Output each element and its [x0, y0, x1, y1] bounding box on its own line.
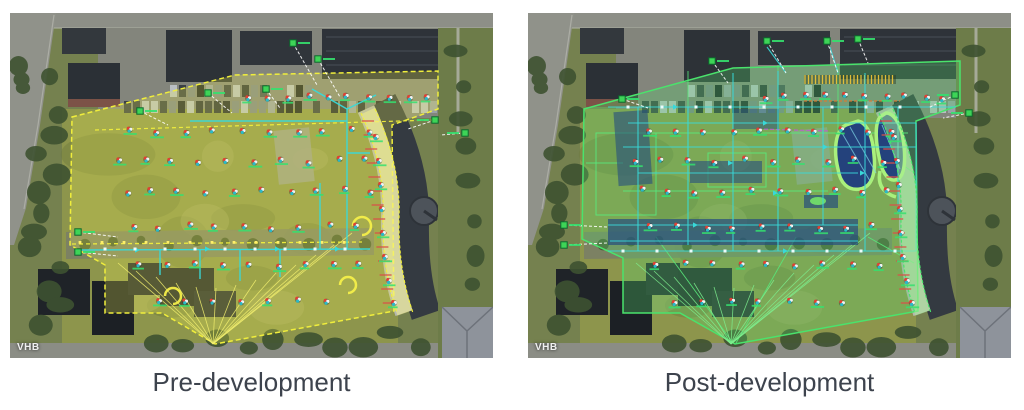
- panel-pre-development: VHB Pre-development: [10, 13, 493, 397]
- caption-post-development: Post-development: [528, 367, 1011, 397]
- vhb-watermark: VHB: [17, 342, 40, 353]
- pre-development-map-graphic: [10, 13, 493, 358]
- post-development-map-graphic: [528, 13, 1011, 358]
- caption-pre-development: Pre-development: [10, 367, 493, 397]
- pre-development-aerial-map: VHB: [10, 13, 493, 358]
- panel-post-development: VHB Post-development: [528, 13, 1011, 397]
- comparison-figure: VHB Pre-development VHB Post-development: [10, 13, 1011, 397]
- vhb-watermark: VHB: [535, 342, 558, 353]
- post-development-aerial-map: VHB: [528, 13, 1011, 358]
